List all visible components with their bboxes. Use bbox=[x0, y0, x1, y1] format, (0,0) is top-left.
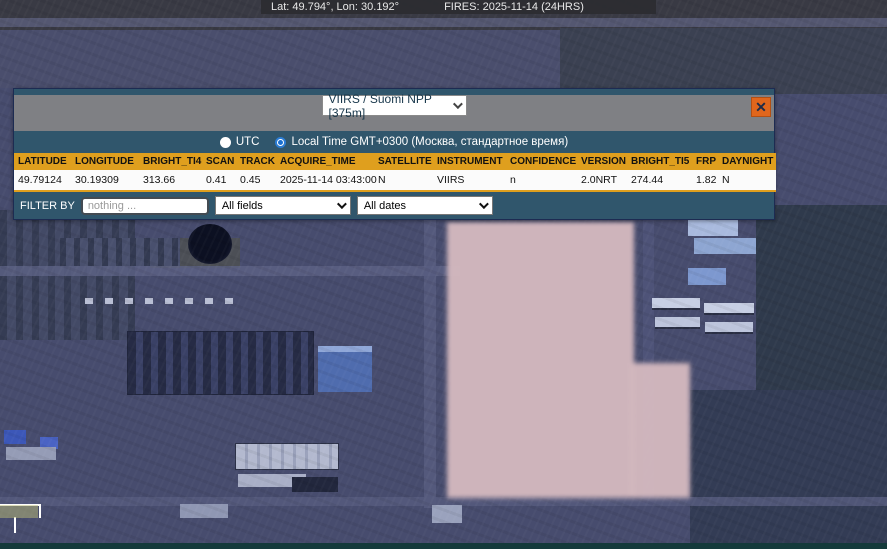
sensor-select[interactable]: VIIRS / Suomi NPP [375m] bbox=[322, 95, 467, 116]
cell-version: 2.0NRT bbox=[577, 170, 627, 191]
cell-scan: 0.41 bbox=[202, 170, 236, 191]
column-header: BRIGHT_TI4 bbox=[139, 153, 202, 170]
fire-detail-popup: VIIRS / Suomi NPP [375m] ✕ UTC Local Tim… bbox=[13, 88, 775, 220]
local-time-radio-label: Local Time GMT+0300 (Москва, стандартное… bbox=[291, 136, 568, 148]
column-header: ACQUIRE_TIME bbox=[276, 153, 374, 170]
map-view: Lat: 49.794°, Lon: 30.192° FIRES: 2025-1… bbox=[0, 0, 887, 549]
column-header: SATELLITE bbox=[374, 153, 433, 170]
satellite-map[interactable] bbox=[0, 0, 887, 549]
time-toggle-row: UTC Local Time GMT+0300 (Москва, стандар… bbox=[14, 131, 774, 153]
cell-instrument: VIIRS bbox=[433, 170, 506, 191]
filter-fields-value: All fields bbox=[222, 200, 263, 212]
map-texture bbox=[0, 0, 887, 549]
column-header: LATITUDE bbox=[14, 153, 71, 170]
column-header: LONGITUDE bbox=[71, 153, 139, 170]
table-row[interactable]: 49.79124 30.19309 313.66 0.41 0.45 2025-… bbox=[14, 170, 776, 191]
cell-bright-ti5: 274.44 bbox=[627, 170, 692, 191]
column-header: BRIGHT_TI5 bbox=[627, 153, 692, 170]
filter-input[interactable] bbox=[81, 197, 209, 215]
measure-line bbox=[14, 517, 16, 533]
cell-longitude: 30.19309 bbox=[71, 170, 139, 191]
cell-latitude: 49.79124 bbox=[14, 170, 71, 191]
column-header: CONFIDENCE bbox=[506, 153, 577, 170]
utc-radio[interactable]: UTC bbox=[220, 136, 260, 148]
chevron-down-icon bbox=[452, 99, 462, 109]
filter-dates-select[interactable]: All dates bbox=[357, 196, 493, 215]
fire-attributes-table: LATITUDE LONGITUDE BRIGHT_TI4 SCAN TRACK… bbox=[14, 153, 776, 192]
filter-fields-select[interactable]: All fields bbox=[215, 196, 351, 215]
bottom-map-band bbox=[0, 543, 887, 549]
filter-dates-value: All dates bbox=[364, 200, 406, 212]
cell-satellite: N bbox=[374, 170, 433, 191]
utc-radio-label: UTC bbox=[236, 136, 260, 148]
column-header: DAYNIGHT bbox=[718, 153, 776, 170]
column-header: VERSION bbox=[577, 153, 627, 170]
radio-icon bbox=[220, 137, 231, 148]
chevron-down-icon bbox=[337, 199, 347, 209]
cell-bright-ti4: 313.66 bbox=[139, 170, 202, 191]
cell-confidence: n bbox=[506, 170, 577, 191]
popup-header: VIIRS / Suomi NPP [375m] ✕ bbox=[14, 95, 774, 131]
chevron-down-icon bbox=[479, 199, 489, 209]
local-time-radio[interactable]: Local Time GMT+0300 (Москва, стандартное… bbox=[275, 136, 568, 148]
filter-row: FILTER BY All fields All dates bbox=[14, 192, 774, 219]
column-header: TRACK bbox=[236, 153, 276, 170]
cell-daynight: N bbox=[718, 170, 776, 191]
column-header: FRP bbox=[692, 153, 718, 170]
table-header-row: LATITUDE LONGITUDE BRIGHT_TI4 SCAN TRACK… bbox=[14, 153, 776, 170]
sensor-select-value: VIIRS / Suomi NPP [375m] bbox=[329, 92, 453, 120]
close-button[interactable]: ✕ bbox=[751, 97, 771, 117]
cell-frp: 1.82 bbox=[692, 170, 718, 191]
fires-date-readout: FIRES: 2025-11-14 (24HRS) bbox=[444, 0, 584, 14]
radio-selected-icon bbox=[275, 137, 286, 148]
map-highlight-patch bbox=[0, 505, 38, 518]
status-bar: Lat: 49.794°, Lon: 30.192° FIRES: 2025-1… bbox=[261, 0, 656, 14]
column-header: SCAN bbox=[202, 153, 236, 170]
coordinates-readout: Lat: 49.794°, Lon: 30.192° bbox=[271, 0, 399, 14]
column-header: INSTRUMENT bbox=[433, 153, 506, 170]
cell-track: 0.45 bbox=[236, 170, 276, 191]
filter-label: FILTER BY bbox=[20, 200, 75, 212]
measure-line bbox=[39, 504, 41, 518]
cell-acquire-time: 2025-11-14 03:43:00 bbox=[276, 170, 374, 191]
